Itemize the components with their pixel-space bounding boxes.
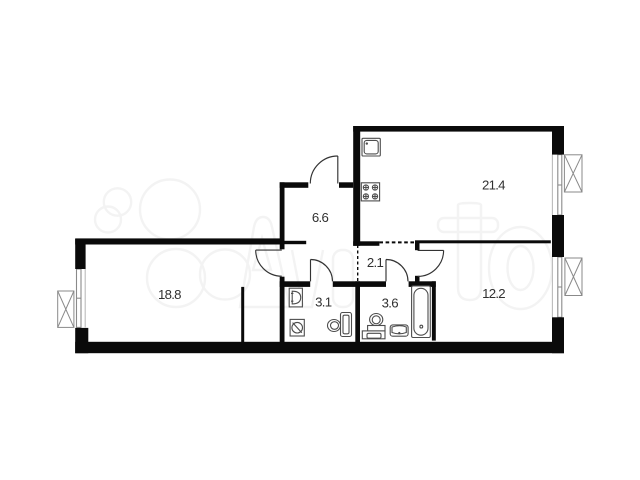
svg-text:3.6: 3.6 xyxy=(382,295,399,310)
svg-text:2.1: 2.1 xyxy=(367,255,384,270)
svg-text:3.1: 3.1 xyxy=(315,295,332,310)
svg-text:18.8: 18.8 xyxy=(158,287,181,302)
svg-text:21.4: 21.4 xyxy=(482,178,505,193)
svg-text:12.2: 12.2 xyxy=(482,286,505,301)
svg-text:6.6: 6.6 xyxy=(312,210,329,225)
